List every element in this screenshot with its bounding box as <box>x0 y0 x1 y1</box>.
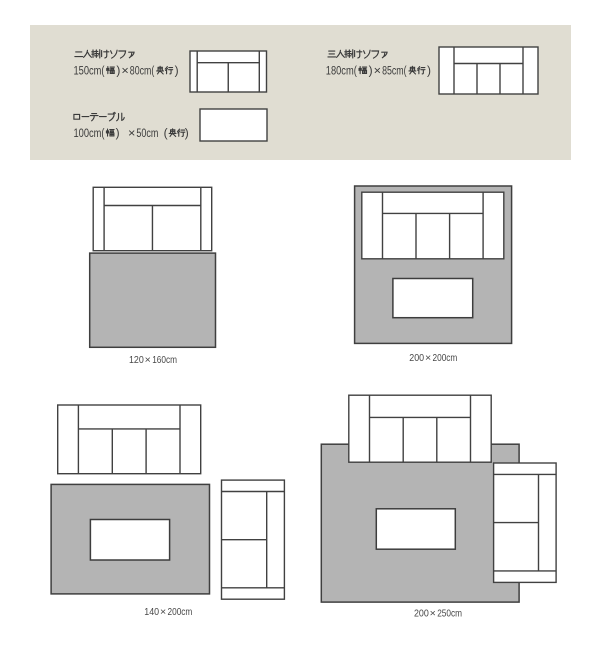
svg-text:(: ( <box>164 128 168 140</box>
svg-text:140: 140 <box>144 607 159 618</box>
svg-text:×: × <box>145 355 151 366</box>
svg-text:100cm(: 100cm( <box>74 128 105 140</box>
svg-text:×: × <box>430 609 436 620</box>
svg-text:): ) <box>427 66 431 78</box>
svg-text:50cm: 50cm <box>136 128 158 140</box>
svg-text:85cm(: 85cm( <box>382 66 407 78</box>
svg-text:×: × <box>121 66 128 78</box>
svg-text:): ) <box>116 128 120 140</box>
svg-text:): ) <box>116 66 120 78</box>
svg-text:160cm: 160cm <box>152 355 177 366</box>
svg-text:180cm(: 180cm( <box>326 66 357 78</box>
svg-text:×: × <box>425 353 431 364</box>
svg-text:200cm: 200cm <box>168 607 193 618</box>
svg-text:80cm(: 80cm( <box>130 66 155 78</box>
svg-text:): ) <box>185 128 189 140</box>
svg-text:): ) <box>369 66 373 78</box>
svg-text:200cm: 200cm <box>433 353 458 364</box>
svg-text:200: 200 <box>409 353 424 364</box>
svg-text:150cm(: 150cm( <box>74 66 105 78</box>
svg-text:×: × <box>128 128 135 140</box>
svg-text:×: × <box>374 66 381 78</box>
svg-text:200: 200 <box>414 609 429 620</box>
svg-text:×: × <box>160 607 166 618</box>
svg-text:250cm: 250cm <box>437 609 462 620</box>
svg-text:120: 120 <box>129 355 144 366</box>
svg-text:): ) <box>175 66 179 78</box>
